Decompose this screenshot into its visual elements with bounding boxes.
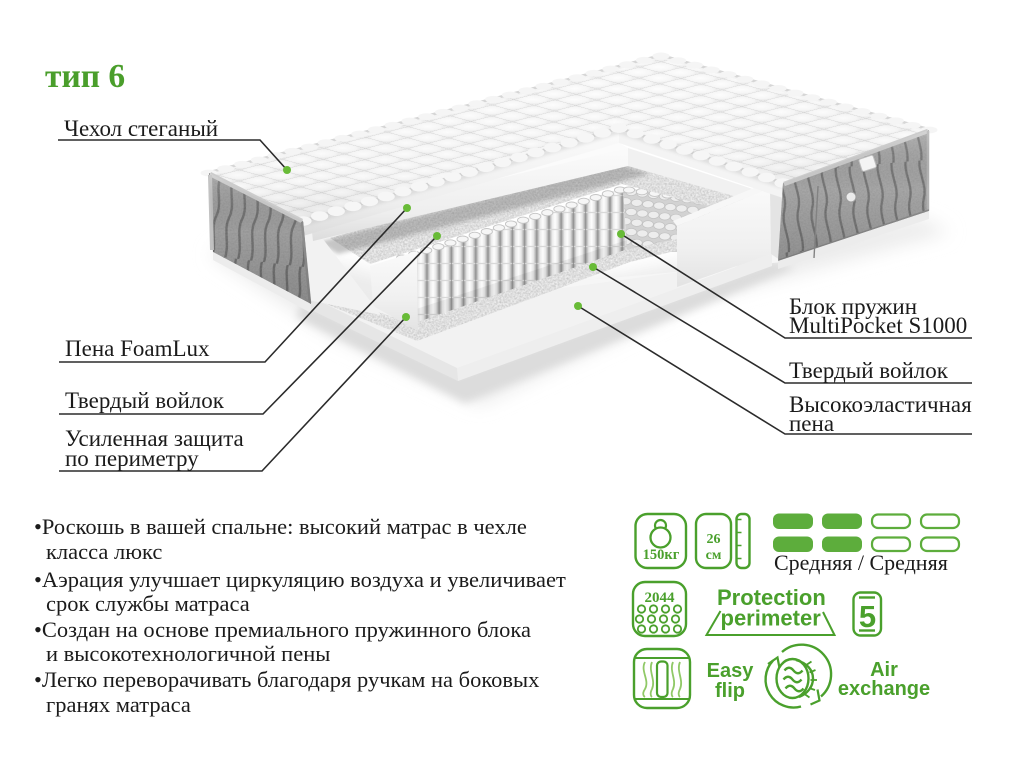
svg-text:по периметру: по периметру [65, 446, 199, 471]
svg-text:Твердый войлок: Твердый войлок [789, 358, 949, 383]
svg-text:flip: flip [715, 680, 745, 702]
svg-text:Чехол стеганый: Чехол стеганый [64, 116, 218, 141]
svg-text:тип 6: тип 6 [45, 58, 125, 95]
svg-text:пена: пена [789, 411, 834, 436]
svg-text:•Создан на основе премиального: •Создан на основе премиального пружинног… [34, 617, 531, 642]
svg-text:•Роскошь в вашей спальне: высо: •Роскошь в вашей спальне: высокий матрас… [34, 514, 527, 539]
svg-text:и высокотехнологичной пены: и высокотехнологичной пены [46, 641, 330, 666]
svg-text:5: 5 [859, 599, 876, 634]
svg-text:150кг: 150кг [643, 547, 680, 563]
svg-text:•Легко переворачивать благодар: •Легко переворачивать благодаря ручкам н… [34, 667, 539, 692]
svg-text:perimeter: perimeter [721, 606, 822, 631]
svg-text:•Аэрация улучшает циркуляцию в: •Аэрация улучшает циркуляцию воздуха и у… [34, 567, 566, 592]
svg-text:срок службы матраса: срок службы матраса [46, 591, 250, 616]
svg-text:см: см [706, 548, 722, 563]
svg-text:Твердый войлок: Твердый войлок [65, 388, 225, 413]
svg-text:Пена FoamLux: Пена FoamLux [65, 336, 210, 361]
svg-text:гранях матраса: гранях матраса [46, 692, 191, 717]
svg-text:Средняя / Средняя: Средняя / Средняя [774, 550, 948, 575]
svg-text:класса люкс: класса люкс [46, 539, 162, 564]
svg-text:Easy: Easy [707, 660, 755, 682]
svg-text:MultiPocket S1000: MultiPocket S1000 [789, 313, 967, 338]
svg-text:exchange: exchange [838, 678, 930, 700]
svg-text:2044: 2044 [645, 590, 676, 606]
svg-text:26: 26 [707, 532, 721, 547]
